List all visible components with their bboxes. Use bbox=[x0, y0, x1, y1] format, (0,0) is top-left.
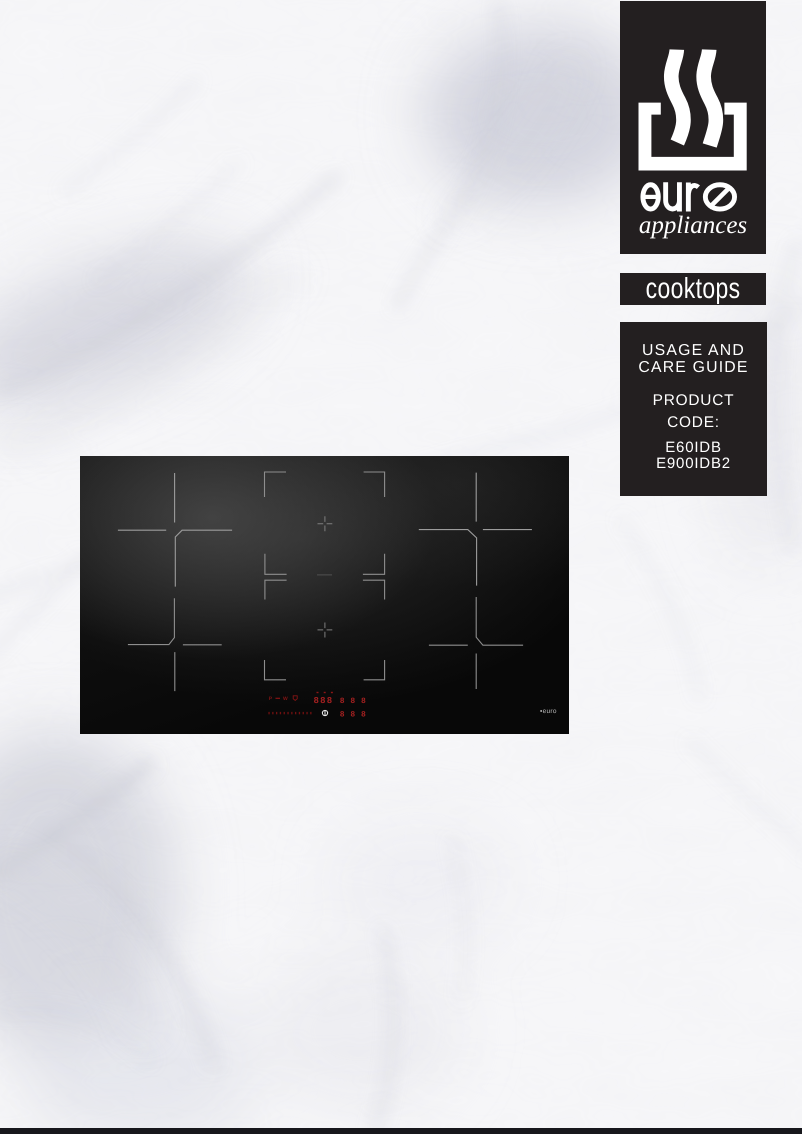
svg-text:888: 888 bbox=[314, 696, 334, 706]
svg-text:▪euro: ▪euro bbox=[540, 708, 557, 715]
svg-text:W: W bbox=[283, 696, 288, 702]
svg-text:P: P bbox=[269, 696, 273, 702]
svg-text:888: 888 bbox=[340, 710, 372, 719]
svg-text:888: 888 bbox=[340, 697, 372, 706]
